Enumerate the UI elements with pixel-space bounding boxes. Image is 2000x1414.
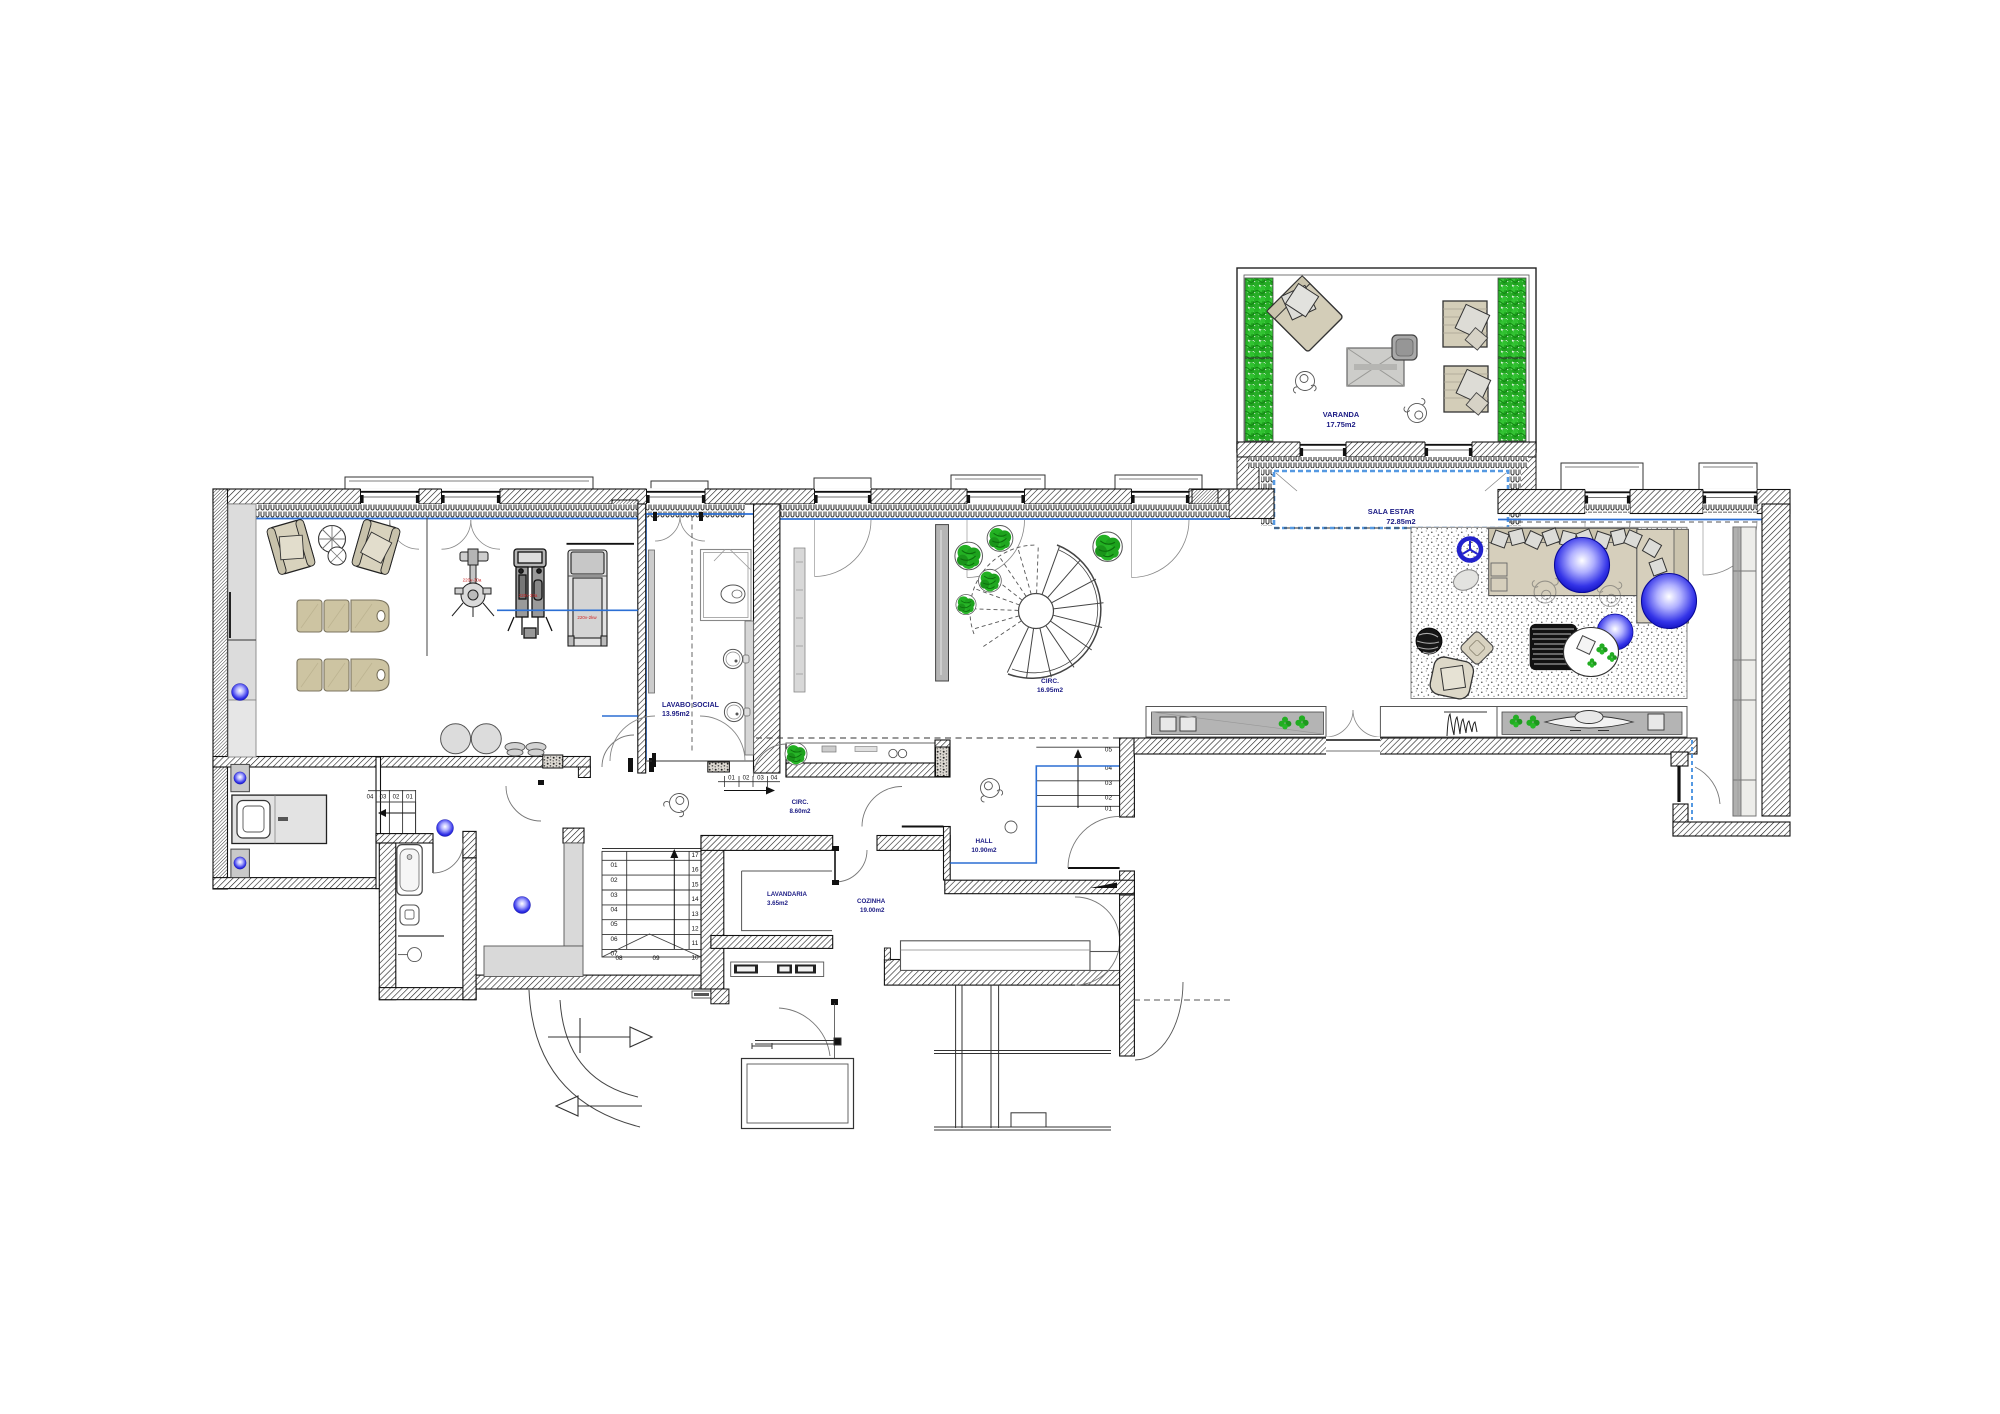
svg-text:220v-30a: 220v-30a	[519, 593, 538, 598]
svg-text:02: 02	[1105, 795, 1113, 802]
svg-text:13.95m2: 13.95m2	[662, 711, 690, 718]
svg-text:03: 03	[757, 776, 764, 782]
svg-text:14: 14	[691, 896, 699, 903]
svg-text:05: 05	[1105, 747, 1113, 754]
svg-text:02: 02	[393, 795, 400, 801]
svg-text:3.65m2: 3.65m2	[767, 900, 789, 907]
svg-text:17: 17	[691, 852, 699, 859]
svg-text:16.95m2: 16.95m2	[1037, 687, 1063, 694]
svg-text:01: 01	[1105, 806, 1113, 813]
svg-text:13: 13	[691, 911, 699, 918]
svg-text:10: 10	[691, 955, 699, 962]
svg-text:LAVABO SOCIAL: LAVABO SOCIAL	[662, 702, 720, 709]
svg-text:01: 01	[610, 862, 618, 869]
svg-text:HALL: HALL	[975, 838, 992, 845]
svg-text:01: 01	[406, 795, 413, 801]
svg-text:19.00m2: 19.00m2	[860, 907, 885, 914]
svg-text:01: 01	[728, 776, 735, 782]
svg-text:06: 06	[610, 936, 618, 943]
svg-text:COZINHA: COZINHA	[857, 898, 886, 905]
svg-text:03: 03	[1105, 780, 1113, 787]
svg-text:220v-30a: 220v-30a	[463, 578, 482, 583]
svg-text:02: 02	[610, 877, 618, 884]
svg-text:12: 12	[691, 926, 699, 933]
svg-text:LAVANDARIA: LAVANDARIA	[767, 891, 808, 898]
svg-text:09: 09	[652, 955, 660, 962]
svg-text:16: 16	[691, 867, 699, 874]
svg-text:CIRC.: CIRC.	[1041, 678, 1059, 685]
svg-text:11: 11	[692, 940, 699, 947]
svg-text:SALA ESTAR: SALA ESTAR	[1368, 507, 1415, 516]
svg-text:CIRC.: CIRC.	[792, 799, 809, 806]
svg-text:VARANDA: VARANDA	[1323, 410, 1360, 419]
svg-text:17.75m2: 17.75m2	[1326, 420, 1355, 429]
svg-text:03: 03	[610, 892, 618, 899]
svg-text:72.85m2: 72.85m2	[1386, 517, 1415, 526]
svg-text:10.90m2: 10.90m2	[971, 847, 997, 854]
svg-text:05: 05	[610, 921, 618, 928]
svg-text:02: 02	[743, 776, 750, 782]
svg-text:03: 03	[380, 795, 387, 801]
svg-text:8.60m2: 8.60m2	[790, 808, 812, 815]
svg-text:08: 08	[615, 955, 623, 962]
svg-text:04: 04	[771, 776, 778, 782]
svg-text:04: 04	[610, 907, 618, 914]
svg-text:220v-2kw: 220v-2kw	[577, 615, 597, 620]
svg-text:04: 04	[367, 795, 374, 801]
svg-text:15: 15	[691, 882, 699, 889]
